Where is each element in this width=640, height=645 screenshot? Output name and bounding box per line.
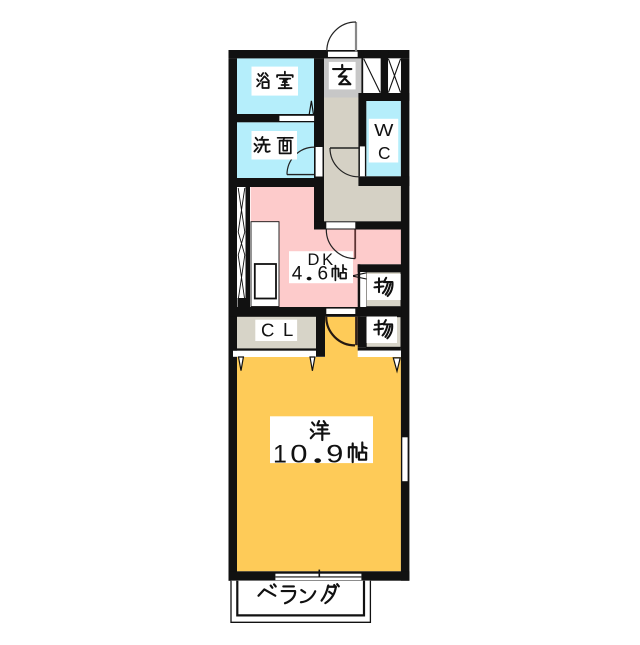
svg-text:0: 0 — [290, 440, 307, 468]
svg-text:9: 9 — [326, 440, 343, 468]
svg-text:L: L — [283, 319, 293, 340]
svg-text:4: 4 — [292, 263, 303, 284]
svg-text:C: C — [378, 143, 390, 163]
svg-text:C: C — [261, 319, 274, 340]
svg-text:1: 1 — [273, 441, 287, 469]
svg-text:6: 6 — [318, 263, 329, 284]
svg-text:W: W — [374, 121, 393, 140]
